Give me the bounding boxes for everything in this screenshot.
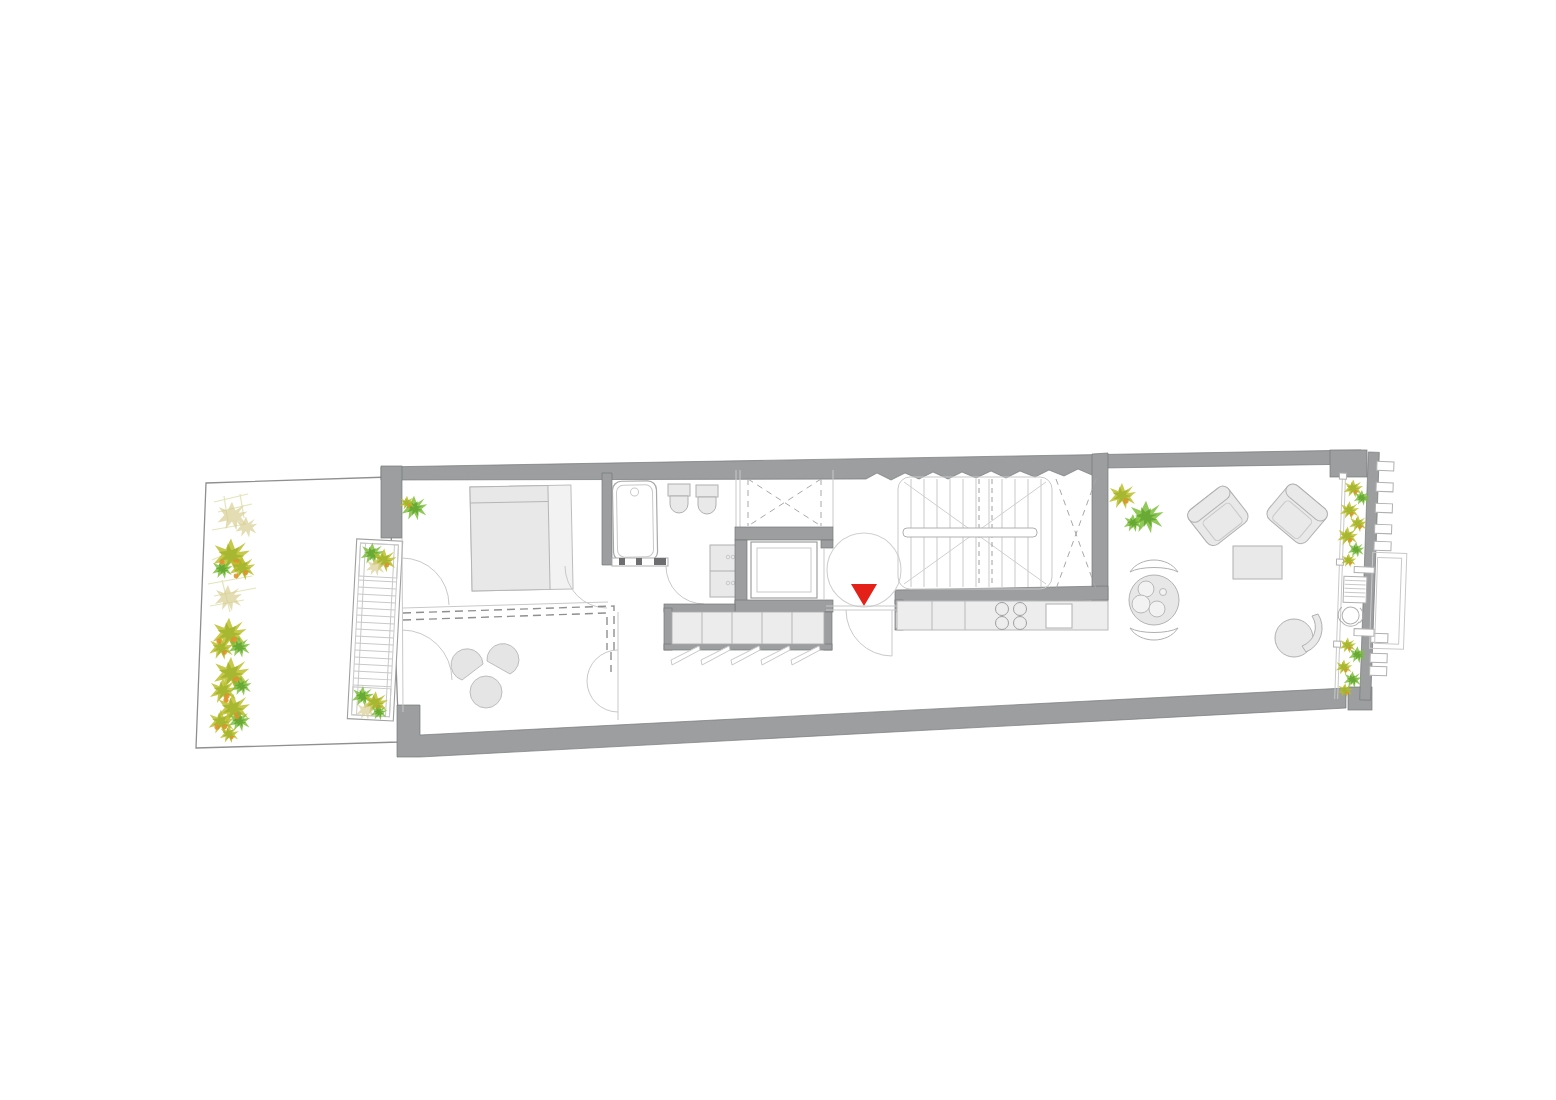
left-wall-stub xyxy=(381,466,402,538)
curved-bench xyxy=(1130,628,1178,640)
elevator xyxy=(735,527,833,612)
door-swing xyxy=(587,681,618,712)
plant xyxy=(1109,483,1136,509)
bed-bath-partition xyxy=(602,473,612,565)
desk-chair-person xyxy=(1338,607,1363,627)
living-room xyxy=(1109,481,1330,657)
stair-living-partition xyxy=(1092,453,1108,602)
facade-balcony xyxy=(1332,451,1411,701)
armchair xyxy=(1264,481,1331,547)
bathroom xyxy=(612,481,736,604)
coffee-table xyxy=(1233,546,1282,579)
armchair xyxy=(1185,483,1251,548)
kitchen xyxy=(897,601,1108,630)
exterior-stair xyxy=(347,539,402,721)
dining-table-set xyxy=(1129,560,1179,640)
double-bed xyxy=(470,485,573,591)
floor-plan-drawing xyxy=(0,0,1556,1100)
door-swing xyxy=(846,610,892,656)
door-swing xyxy=(666,566,704,604)
door-swing xyxy=(402,558,449,605)
tub-chair xyxy=(451,649,483,680)
bathtub xyxy=(612,481,657,562)
door-swing xyxy=(402,630,452,680)
kitchen-sink xyxy=(1046,604,1072,628)
sitting-area xyxy=(451,612,618,720)
handrail xyxy=(903,528,1037,537)
curved-bench xyxy=(1130,560,1178,572)
floor-plan-canvas xyxy=(0,0,1556,1100)
side-table xyxy=(470,676,502,708)
door-swing xyxy=(587,650,618,681)
bedroom-window-line xyxy=(402,538,403,712)
desk xyxy=(1343,576,1367,603)
void-shaft-x xyxy=(1056,479,1096,589)
washbasin-cabinet xyxy=(710,545,736,597)
wardrobe xyxy=(664,604,832,665)
wardrobe-units xyxy=(672,612,824,644)
void-shaft-x xyxy=(748,479,821,526)
plant xyxy=(1348,542,1365,558)
shelf xyxy=(1354,629,1374,637)
wall-hung-wc xyxy=(668,484,690,513)
void-outline xyxy=(403,606,614,650)
plant xyxy=(1340,501,1360,520)
elevator-cab xyxy=(751,542,817,598)
tub-chair xyxy=(487,644,519,674)
bottom-wall xyxy=(397,688,1346,757)
shelf xyxy=(1354,567,1374,574)
top-right-block xyxy=(1330,450,1367,477)
bidet xyxy=(696,485,718,514)
lounge-chair xyxy=(1275,614,1322,657)
top-wall xyxy=(381,450,1361,480)
main-staircase xyxy=(898,477,1052,589)
plant xyxy=(1344,671,1362,689)
entry-landing xyxy=(826,533,901,656)
